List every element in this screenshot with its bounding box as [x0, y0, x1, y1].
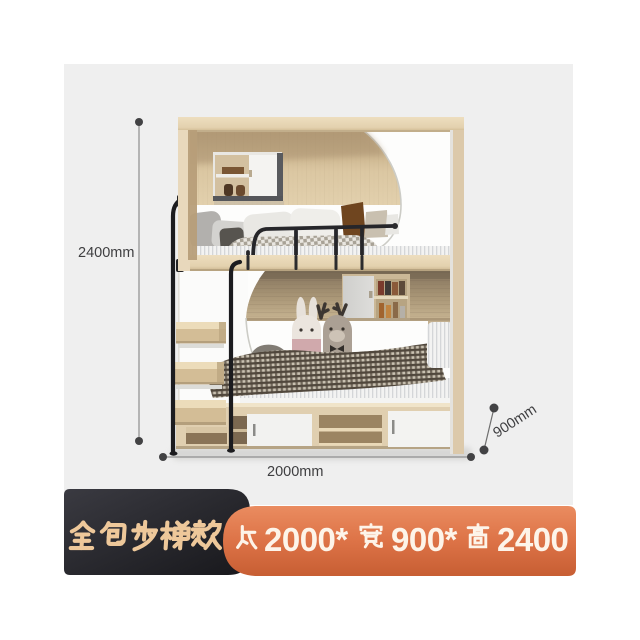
svg-text:2000mm: 2000mm: [267, 464, 323, 480]
svg-text:2000*: 2000*: [264, 521, 348, 558]
svg-text:2400mm: 2400mm: [78, 245, 134, 261]
svg-text:900*: 900*: [391, 521, 458, 558]
svg-text:2400: 2400: [497, 521, 568, 558]
